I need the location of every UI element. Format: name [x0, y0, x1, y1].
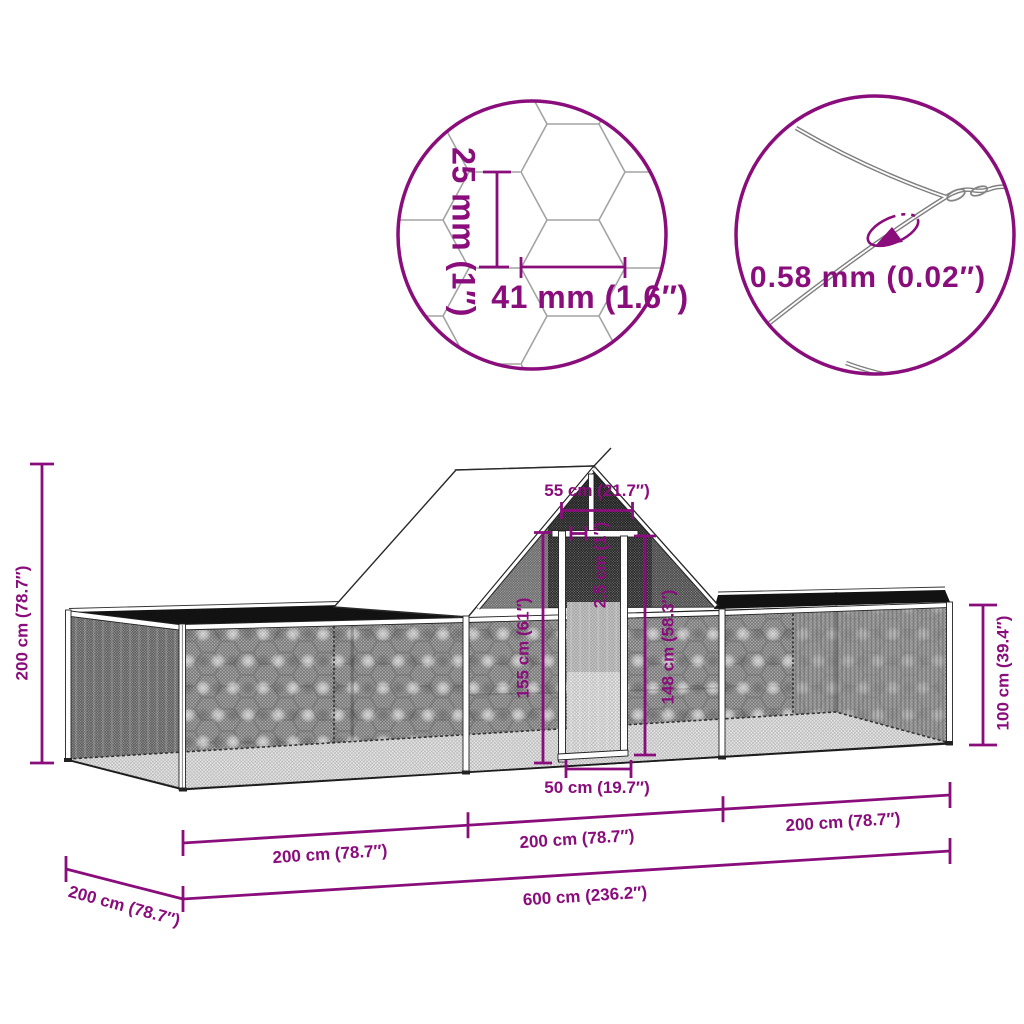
svg-text:200 cm (78.7″): 200 cm (78.7″) — [785, 809, 901, 835]
svg-text:148 cm (58.3″): 148 cm (58.3″) — [658, 590, 677, 705]
svg-text:41 mm (1.6″): 41 mm (1.6″) — [491, 279, 688, 315]
svg-text:200 cm (78.7″): 200 cm (78.7″) — [66, 882, 182, 930]
svg-text:200 cm (78.7″): 200 cm (78.7″) — [519, 826, 635, 852]
svg-text:2,5 cm (1″): 2,5 cm (1″) — [590, 522, 609, 609]
svg-text:600 cm (236.2″): 600 cm (236.2″) — [522, 883, 647, 910]
svg-text:50 cm (19.7″): 50 cm (19.7″) — [544, 778, 649, 797]
svg-text:100 cm (39.4″): 100 cm (39.4″) — [993, 616, 1012, 731]
svg-text:155 cm (61″): 155 cm (61″) — [513, 598, 532, 699]
svg-text:55 cm (21.7″): 55 cm (21.7″) — [544, 481, 649, 500]
svg-text:200 cm (78.7″): 200 cm (78.7″) — [272, 841, 388, 867]
svg-text:0.58 mm (0.02″): 0.58 mm (0.02″) — [750, 261, 986, 294]
svg-text:25 mm (1″): 25 mm (1″) — [446, 147, 482, 317]
svg-text:200 cm (78.7″): 200 cm (78.7″) — [12, 566, 31, 681]
